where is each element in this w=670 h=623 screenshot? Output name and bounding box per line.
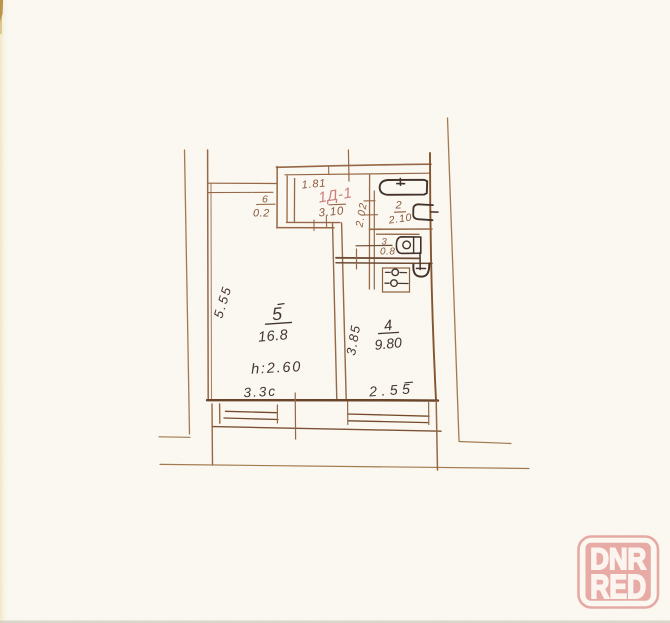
svg-text:16.8: 16.8 <box>257 327 289 346</box>
svg-text:3.3c: 3.3c <box>243 384 277 401</box>
svg-text:0.8: 0.8 <box>380 247 395 258</box>
svg-text:h:2.60: h:2.60 <box>251 359 303 378</box>
svg-text:6: 6 <box>262 194 268 206</box>
svg-text:0.2: 0.2 <box>253 208 270 220</box>
svg-text:2: 2 <box>395 200 402 212</box>
svg-text:9.80: 9.80 <box>374 334 403 353</box>
svg-text:2.55: 2.55 <box>368 380 415 399</box>
svg-text:3.10: 3.10 <box>318 205 345 219</box>
svg-text:RED: RED <box>590 568 646 605</box>
